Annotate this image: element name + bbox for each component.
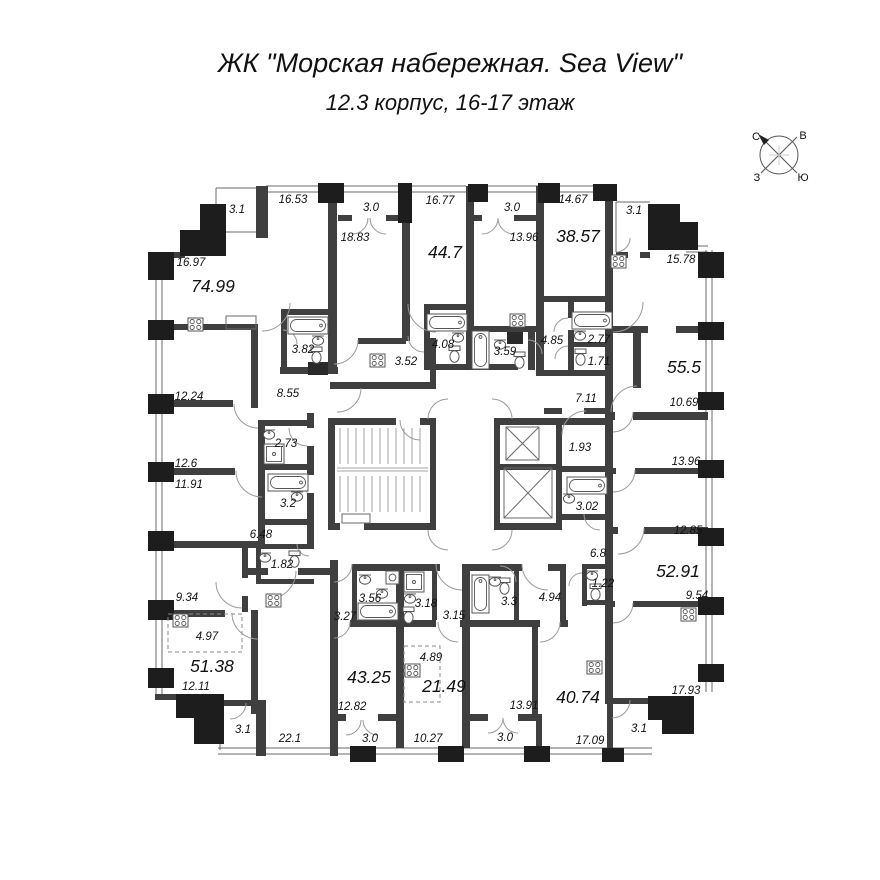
area-label: 13.96 — [510, 232, 539, 244]
bathtub-icon — [358, 603, 398, 620]
area-label: 6.8 — [590, 548, 607, 560]
page-subtitle: 12.3 корпус, 16-17 этаж — [326, 90, 576, 115]
apartment-total-label: 43.25 — [347, 667, 391, 687]
compass-north-label: С — [752, 131, 760, 143]
area-label: 12.6 — [175, 458, 198, 470]
area-label: 12.82 — [338, 701, 367, 713]
area-label: 3.1 — [235, 724, 251, 736]
area-label: 14.67 — [559, 194, 588, 206]
area-label: 3.59 — [494, 346, 517, 358]
compass-rose-icon: С В З Ю — [752, 130, 809, 184]
area-label: 3.56 — [359, 593, 382, 605]
area-label: 1.22 — [592, 578, 615, 590]
bathtub-icon — [572, 312, 612, 329]
stove-icon — [587, 661, 602, 674]
area-label: 12.85 — [674, 525, 703, 537]
floor-plan-drawing: ЖК "Морская набережная. Sea View" 12.3 к… — [0, 0, 880, 880]
floor-plan-page: ЖК "Морская набережная. Sea View" 12.3 к… — [0, 0, 880, 880]
stove-icon — [370, 354, 385, 367]
stove-icon — [266, 594, 281, 607]
toilet-icon — [403, 607, 414, 623]
area-label: 3.27 — [334, 611, 357, 623]
area-label: 4.08 — [432, 339, 455, 351]
apartment-total-label: 55.5 — [667, 357, 701, 377]
area-label: 13.91 — [510, 700, 539, 712]
area-label: 7.11 — [575, 393, 597, 405]
area-label: 2.77 — [587, 334, 611, 346]
area-label: 1.82 — [271, 559, 294, 571]
apartment-total-label: 52.91 — [656, 561, 700, 581]
area-label: 12.11 — [182, 681, 210, 693]
bathtub-icon — [472, 331, 489, 369]
area-label: 16.97 — [177, 257, 206, 269]
area-label: 3.0 — [504, 202, 521, 214]
area-label: 3.52 — [395, 356, 418, 368]
area-label: 10.27 — [414, 733, 443, 745]
stove-icon — [510, 314, 525, 327]
toilet-icon — [575, 349, 586, 365]
area-label: 12.24 — [175, 391, 204, 403]
area-label: 10.69 — [670, 397, 699, 409]
area-label: 6.48 — [250, 529, 273, 541]
stove-icon — [188, 318, 203, 331]
area-label: 9.54 — [686, 590, 708, 602]
area-label: 2.73 — [274, 438, 298, 450]
apartment-total-label: 44.7 — [428, 242, 463, 262]
area-label: 3.18 — [415, 598, 438, 610]
area-label: 15.78 — [667, 254, 696, 266]
washing-machine-icon — [386, 571, 399, 584]
apartment-total-label: 74.99 — [191, 276, 235, 296]
sink-icon — [489, 577, 501, 586]
area-label: 4.89 — [420, 652, 443, 664]
apartment-total-label: 38.57 — [556, 226, 601, 246]
compass-south-label: Ю — [797, 172, 808, 184]
area-label: 3.1 — [631, 723, 647, 735]
apartment-total-label: 40.74 — [556, 687, 600, 707]
staircase — [337, 428, 428, 523]
area-label: 3.0 — [363, 202, 380, 214]
area-label: 3.02 — [576, 501, 599, 513]
area-label: 3.1 — [229, 204, 245, 216]
compass-west-label: З — [754, 172, 761, 184]
area-label: 4.85 — [541, 335, 564, 347]
stove-icon — [405, 664, 420, 677]
sink-icon — [574, 331, 586, 340]
area-label: 3.2 — [280, 498, 297, 510]
area-label: 4.94 — [539, 592, 561, 604]
bathtub-icon — [288, 317, 328, 334]
area-label: 17.93 — [672, 685, 701, 697]
page-title: ЖК "Морская набережная. Sea View" — [216, 48, 684, 78]
area-label: 1.71 — [588, 356, 610, 368]
area-label: 4.97 — [196, 631, 219, 643]
area-label: 16.77 — [426, 195, 455, 207]
stove-icon — [681, 608, 696, 621]
area-label: 3.3 — [501, 596, 518, 608]
area-label: 11.91 — [175, 479, 203, 491]
bathtub-icon — [567, 477, 607, 494]
stove-icon — [611, 255, 626, 268]
sink-icon — [359, 575, 371, 584]
area-label: 3.82 — [292, 344, 315, 356]
stove-icon — [173, 614, 188, 627]
sink-icon — [259, 553, 271, 562]
sink-icon — [563, 494, 575, 503]
area-label: 13.96 — [672, 456, 701, 468]
bathtub-icon — [268, 474, 308, 491]
bathtub-icon — [427, 314, 467, 331]
shower-icon — [404, 572, 424, 592]
area-label: 3.0 — [497, 732, 514, 744]
compass-east-label: В — [799, 130, 806, 142]
area-label: 8.55 — [277, 388, 300, 400]
elevator-shafts — [504, 427, 552, 518]
bathtub-icon — [472, 575, 489, 613]
sink-icon — [263, 430, 275, 439]
area-label: 3.0 — [362, 733, 379, 745]
area-label: 22.1 — [278, 733, 301, 745]
area-label: 9.34 — [176, 592, 198, 604]
area-label: 16.53 — [279, 194, 308, 206]
apartment-total-label: 51.38 — [190, 656, 234, 676]
area-label: 18.83 — [341, 232, 370, 244]
apartment-total-label: 21.49 — [421, 676, 466, 696]
area-label: 17.09 — [576, 735, 605, 747]
area-label: 3.1 — [626, 205, 642, 217]
area-label: 1.93 — [569, 442, 592, 454]
interior-walls — [155, 186, 710, 756]
area-label: 3.15 — [443, 610, 466, 622]
